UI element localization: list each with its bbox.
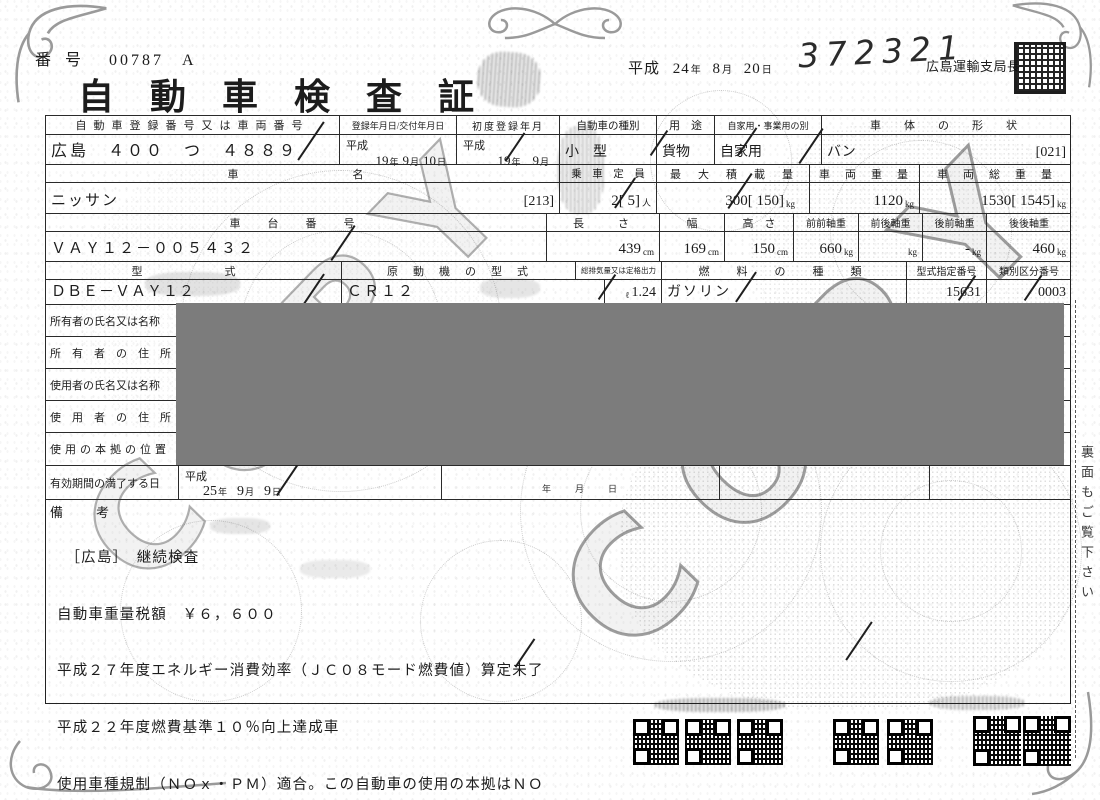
vehicle-weight-value: 1120 bbox=[874, 193, 903, 210]
field-body-shape-label: 車 体 の 形 状 bbox=[821, 115, 1071, 134]
qr-code bbox=[1023, 716, 1071, 766]
fuel-value: ガソリン bbox=[667, 281, 731, 301]
axle-ff-unit: kg bbox=[844, 247, 853, 257]
axle-fr-unit: kg bbox=[908, 247, 917, 257]
first-reg-era: 平成 bbox=[463, 137, 553, 153]
expiry-date-hint: 年 月 日 bbox=[542, 482, 619, 495]
qr-code bbox=[737, 719, 783, 765]
field-use-value: 貨物 bbox=[656, 134, 714, 164]
document-number-suffix: A bbox=[182, 52, 194, 69]
field-expiry-blank-date: 年 月 日 bbox=[441, 465, 719, 500]
qr-code bbox=[685, 719, 731, 765]
field-axle-rr-value: 460kg bbox=[986, 231, 1071, 261]
qr-code bbox=[633, 719, 679, 765]
remark-line: 平成２２年度燃費基準１０％向上達成車 bbox=[57, 719, 544, 738]
field-body-shape-value: バン [021] bbox=[821, 134, 1071, 164]
field-first-reg-label: 初度登録年月 bbox=[456, 115, 559, 134]
field-width-value: 169cm bbox=[659, 231, 724, 261]
ink-smudge bbox=[930, 696, 1025, 710]
field-owner-name-label: 所有者の氏名又は名称 bbox=[45, 304, 178, 336]
displacement-unit: ℓ bbox=[625, 290, 629, 300]
field-reg-date-label: 登録年月日/交付年月日 bbox=[339, 115, 456, 134]
field-gross-weight-value: 1530[ 1545]kg bbox=[919, 182, 1071, 213]
reg-date-era: 平成 bbox=[346, 137, 450, 153]
field-length-value: 439cm bbox=[546, 231, 659, 261]
issue-date-day-unit: 日 bbox=[762, 65, 773, 76]
issue-date-month-unit: 月 bbox=[722, 65, 733, 76]
field-chassis-value: ＶＡＹ１２－００５４３２ bbox=[45, 231, 546, 261]
vehicle-inspection-certificate: COPY COPY 番号00787A 自動車検査証 平成 24年 8月 20日 … bbox=[0, 0, 1100, 800]
field-car-name-label: 車 名 bbox=[45, 164, 559, 182]
expiry-month: 9 bbox=[237, 484, 244, 499]
document-number-value: 00787 bbox=[109, 52, 164, 69]
field-fuel-label: 燃 料 の 種 類 bbox=[661, 261, 906, 279]
field-owner-address-label: 所 有 者 の 住 所 bbox=[45, 336, 178, 368]
engine-model-value: ＣＲ１２ bbox=[347, 280, 415, 301]
field-vehicle-weight-label: 車 両 重 量 bbox=[809, 164, 919, 182]
field-displacement-value: ℓ1.24 bbox=[604, 279, 661, 304]
ink-smudge bbox=[476, 50, 542, 109]
field-private-business-label: 自家用・事業用の別 bbox=[714, 115, 821, 134]
capacity-unit: 人 bbox=[642, 196, 651, 209]
field-engine-model-label: 原 動 機 の 型 式 bbox=[341, 261, 575, 279]
ornament-top-center bbox=[435, 4, 675, 44]
field-fuel-value: ガソリン bbox=[661, 279, 906, 304]
length-value: 439 bbox=[619, 241, 642, 258]
field-height-label: 高 さ bbox=[724, 213, 793, 231]
field-length-label: 長 さ bbox=[546, 213, 659, 231]
remark-line: 使用車種規制（ＮＯｘ・ＰＭ）適合。この自動車の使用の本拠はＮＯ bbox=[57, 776, 544, 795]
issue-date-era: 平成 bbox=[628, 61, 660, 77]
field-engine-model-value: ＣＲ１２ bbox=[341, 279, 604, 304]
gross-weight-unit: kg bbox=[1057, 199, 1066, 209]
ink-smudge bbox=[480, 278, 540, 298]
chassis-value: ＶＡＹ１２－００５４３２ bbox=[51, 237, 255, 258]
expiry-year: 25 bbox=[203, 484, 217, 499]
length-unit: cm bbox=[643, 247, 654, 257]
axle-rr-value: 460 bbox=[1033, 241, 1056, 258]
car-name-code: [213] bbox=[524, 194, 554, 210]
vehicle-weight-unit: kg bbox=[905, 199, 914, 209]
expiry-day: 9 bbox=[264, 484, 271, 499]
ink-smudge bbox=[300, 560, 370, 578]
class-no-value: 0003 bbox=[1038, 285, 1066, 301]
fold-dash-line bbox=[1075, 300, 1076, 758]
field-axle-ff-value: 660kg bbox=[793, 231, 858, 261]
field-registration-value: 広島 ４００ つ ４８８９ bbox=[45, 134, 339, 164]
field-registration-label: 自動車登録番号又は車両番号 bbox=[45, 115, 339, 134]
gross-weight-value: 1530[ 1545] bbox=[981, 193, 1055, 210]
expiry-year-unit: 年 bbox=[218, 487, 227, 497]
field-height-value: 150cm bbox=[724, 231, 793, 261]
height-unit: cm bbox=[777, 247, 788, 257]
qr-code bbox=[833, 719, 879, 765]
field-expiry-value: 平成 25年9月9日 bbox=[178, 465, 441, 500]
expiry-month-unit: 月 bbox=[245, 487, 254, 497]
field-axle-fr-value: kg bbox=[858, 231, 922, 261]
field-car-name-value: ニッサン [213] bbox=[45, 182, 559, 213]
field-expiry-label: 有効期間の満了する日 bbox=[45, 465, 178, 500]
field-vehicle-weight-value: 1120kg bbox=[809, 182, 919, 213]
issue-date-month: 8 bbox=[713, 61, 722, 77]
document-title: 自動車検査証 bbox=[78, 68, 510, 120]
body-shape-code: [021] bbox=[1036, 145, 1066, 161]
field-axle-fr-label: 前後軸重 bbox=[858, 213, 922, 231]
axle-ff-value: 660 bbox=[820, 241, 843, 258]
document-number: 番号00787A bbox=[35, 46, 194, 70]
registration-number: 広島 ４００ つ ４８８９ bbox=[51, 137, 298, 161]
body-shape-value: バン bbox=[827, 141, 856, 161]
issue-date-year: 24 bbox=[673, 61, 690, 77]
expiry-row-blank-cell bbox=[929, 465, 1071, 500]
ink-smudge bbox=[558, 126, 604, 214]
ink-smudge bbox=[655, 698, 785, 712]
axle-rf-value: - bbox=[965, 241, 970, 258]
width-value: 169 bbox=[684, 241, 707, 258]
use-value: 貨物 bbox=[662, 141, 690, 161]
width-unit: cm bbox=[708, 247, 719, 257]
back-side-note: 裏面もご覧下さい bbox=[1077, 445, 1096, 605]
field-displacement-label: 総排気量又は定格出力 bbox=[575, 261, 661, 279]
official-seal-stamp bbox=[1014, 42, 1066, 94]
axle-rf-unit: kg bbox=[972, 247, 981, 257]
field-axle-ff-label: 前前軸重 bbox=[793, 213, 858, 231]
ink-smudge bbox=[145, 272, 240, 296]
privacy-redaction-block bbox=[176, 303, 1064, 465]
car-name-value: ニッサン bbox=[51, 189, 119, 210]
issue-date-day: 20 bbox=[744, 61, 761, 77]
field-user-address-label: 使 用 者 の 住 所 bbox=[45, 400, 178, 432]
issue-date-year-unit: 年 bbox=[691, 65, 702, 76]
field-max-load-value: 300[ 150]kg bbox=[656, 182, 809, 213]
field-axle-rf-label: 後前軸重 bbox=[922, 213, 986, 231]
field-width-label: 幅 bbox=[659, 213, 724, 231]
field-axle-rr-label: 後後軸重 bbox=[986, 213, 1071, 231]
field-reg-date-value: 平成 19年9月10日 bbox=[339, 134, 456, 164]
axle-rr-unit: kg bbox=[1057, 247, 1066, 257]
issue-date: 平成 24年 8月 20日 bbox=[628, 57, 779, 78]
field-chassis-label: 車 台 番 号 bbox=[45, 213, 546, 231]
field-type-designation-value: 15631 bbox=[906, 279, 986, 304]
field-max-load-label: 最 大 積 載 量 bbox=[656, 164, 809, 182]
displacement-value: 1.24 bbox=[632, 285, 657, 301]
qr-code bbox=[887, 719, 933, 765]
field-gross-weight-label: 車 両 総 重 量 bbox=[919, 164, 1071, 182]
field-class-no-label: 類別区分番号 bbox=[986, 261, 1071, 279]
document-number-label: 番号 bbox=[35, 52, 95, 69]
field-user-name-label: 使用者の氏名又は名称 bbox=[45, 368, 178, 400]
expiry-row-blank-cell bbox=[719, 465, 929, 500]
field-base-location-label: 使用の本拠の位置 bbox=[45, 432, 178, 465]
remark-line: 自動車重量税額 ￥６，６００ bbox=[57, 606, 544, 625]
height-value: 150 bbox=[753, 241, 776, 258]
field-private-business-value: 自家用 bbox=[714, 134, 821, 164]
expiry-era: 平成 bbox=[185, 468, 435, 484]
qr-code bbox=[973, 716, 1021, 766]
field-axle-rf-value: -kg bbox=[922, 231, 986, 261]
remarks-text: ［広島］ 継続検査 自動車重量税額 ￥６，６００ 平成２７年度エネルギー消費効率… bbox=[57, 511, 544, 800]
remark-line: 平成２７年度エネルギー消費効率（ＪＣ０８モード燃費値）算定未了 bbox=[57, 662, 544, 681]
ink-smudge bbox=[210, 518, 270, 534]
max-load-unit: kg bbox=[786, 199, 795, 209]
